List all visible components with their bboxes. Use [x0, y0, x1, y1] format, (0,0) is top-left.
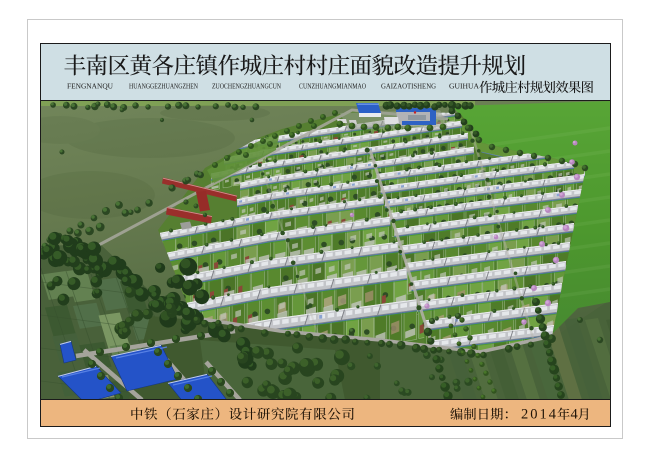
- svg-text:HUANGGEZHUANGZHEN: HUANGGEZHUANGZHEN: [129, 82, 198, 91]
- svg-text:CUNZHUANGMIANMAO: CUNZHUANGMIANMAO: [299, 82, 366, 91]
- svg-text:4: 4: [571, 406, 579, 422]
- svg-text:GUIHUA: GUIHUA: [449, 82, 479, 91]
- svg-text:ZUOCHENGZHUANGCUN: ZUOCHENGZHUANGCUN: [212, 82, 281, 91]
- svg-text:GAIZAOTISHENG: GAIZAOTISHENG: [381, 82, 436, 91]
- svg-text:2014: 2014: [521, 406, 557, 422]
- svg-text:FENGNANQU: FENGNANQU: [67, 82, 113, 91]
